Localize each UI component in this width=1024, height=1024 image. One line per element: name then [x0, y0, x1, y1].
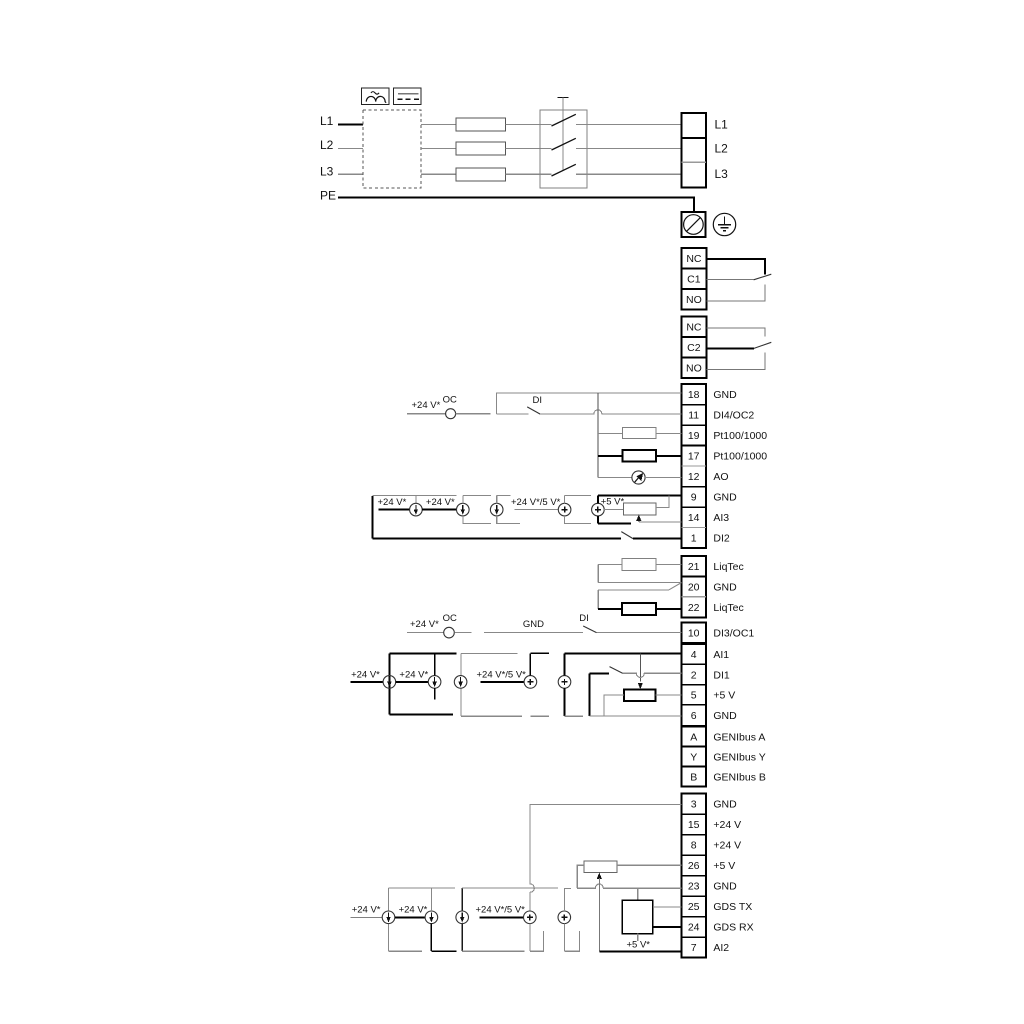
svg-text:25: 25 — [688, 901, 700, 913]
svg-text:GND: GND — [713, 881, 737, 893]
svg-text:+24 V*: +24 V* — [378, 497, 407, 508]
svg-text:NC: NC — [686, 253, 702, 265]
svg-text:+24 V*/5 V*: +24 V*/5 V* — [477, 669, 527, 680]
svg-text:+24 V*: +24 V* — [399, 669, 428, 680]
svg-text:LiqTec: LiqTec — [713, 602, 743, 614]
svg-text:+24 V*: +24 V* — [426, 497, 455, 508]
svg-text:11: 11 — [688, 410, 699, 422]
svg-text:DI: DI — [533, 395, 543, 406]
svg-text:9: 9 — [691, 492, 697, 504]
svg-text:GDS RX: GDS RX — [713, 922, 753, 934]
svg-text:7: 7 — [691, 942, 697, 954]
svg-text:GND: GND — [523, 619, 544, 630]
svg-text:Y: Y — [690, 751, 697, 763]
svg-text:GDS TX: GDS TX — [713, 901, 752, 913]
svg-text:26: 26 — [688, 860, 700, 872]
svg-text:+24 V*: +24 V* — [412, 400, 441, 411]
svg-text:19: 19 — [688, 430, 700, 442]
svg-text:L1: L1 — [320, 114, 334, 128]
svg-text:4: 4 — [691, 649, 697, 661]
svg-text:+5 V: +5 V — [713, 690, 735, 702]
svg-text:+5 V*: +5 V* — [627, 939, 651, 950]
svg-text:AI3: AI3 — [713, 512, 729, 524]
svg-text:+24 V*: +24 V* — [352, 905, 381, 916]
svg-text:OC: OC — [443, 613, 457, 624]
svg-text:GND: GND — [713, 799, 737, 811]
svg-text:OC: OC — [443, 394, 457, 405]
svg-text:AO: AO — [713, 471, 728, 483]
svg-text:+5 V: +5 V — [713, 860, 735, 872]
svg-text:L3: L3 — [715, 167, 729, 181]
svg-text:GENIbus A: GENIbus A — [713, 731, 765, 743]
svg-text:3: 3 — [691, 799, 697, 811]
svg-text:GENIbus B: GENIbus B — [713, 771, 766, 783]
svg-text:20: 20 — [688, 581, 700, 593]
svg-text:1: 1 — [691, 533, 697, 545]
svg-text:C2: C2 — [687, 342, 701, 354]
svg-text:14: 14 — [688, 512, 700, 524]
svg-text:5: 5 — [691, 690, 697, 702]
svg-text:GND: GND — [713, 581, 737, 593]
svg-text:NC: NC — [686, 321, 702, 333]
svg-text:Pt100/1000: Pt100/1000 — [713, 451, 767, 463]
svg-text:24: 24 — [688, 922, 700, 934]
svg-text:+24 V*/5 V*: +24 V*/5 V* — [476, 905, 526, 916]
svg-text:DI1: DI1 — [713, 669, 730, 681]
svg-text:C1: C1 — [687, 274, 701, 286]
svg-text:+24 V*: +24 V* — [399, 905, 428, 916]
svg-text:+24 V*: +24 V* — [351, 669, 380, 680]
svg-text:12: 12 — [688, 471, 700, 483]
svg-text:NO: NO — [686, 363, 702, 375]
svg-text:GND: GND — [713, 492, 737, 504]
svg-text:DI4/OC2: DI4/OC2 — [713, 410, 754, 422]
svg-text:+24 V: +24 V — [713, 819, 741, 831]
svg-text:GENIbus Y: GENIbus Y — [713, 751, 765, 763]
svg-text:B: B — [690, 771, 697, 783]
svg-text:2: 2 — [691, 669, 697, 681]
svg-text:22: 22 — [688, 602, 700, 614]
svg-text:DI2: DI2 — [713, 533, 730, 545]
svg-text:+24 V*/5 V*: +24 V*/5 V* — [511, 497, 561, 508]
svg-text:18: 18 — [688, 389, 700, 401]
svg-text:AI2: AI2 — [713, 942, 729, 954]
svg-text:8: 8 — [691, 840, 697, 852]
svg-text:GND: GND — [713, 389, 737, 401]
svg-text:6: 6 — [691, 710, 697, 722]
svg-text:L2: L2 — [320, 138, 334, 152]
svg-text:AI1: AI1 — [713, 649, 729, 661]
svg-text:17: 17 — [688, 451, 700, 463]
svg-text:21: 21 — [688, 561, 700, 573]
svg-text:LiqTec: LiqTec — [713, 561, 743, 573]
svg-text:Pt100/1000: Pt100/1000 — [713, 430, 767, 442]
svg-text:+24 V: +24 V — [713, 840, 741, 852]
svg-text:DI3/OC1: DI3/OC1 — [713, 628, 754, 640]
svg-text:DI: DI — [579, 613, 589, 624]
svg-text:GND: GND — [713, 710, 737, 722]
svg-text:L1: L1 — [715, 118, 729, 132]
svg-text:A: A — [690, 731, 697, 743]
svg-text:PE: PE — [320, 189, 336, 203]
svg-text:L2: L2 — [715, 142, 729, 156]
svg-text:+24 V*: +24 V* — [410, 619, 439, 630]
svg-text:23: 23 — [688, 881, 700, 893]
svg-text:15: 15 — [688, 819, 700, 831]
svg-text:NO: NO — [686, 294, 702, 306]
svg-text:L3: L3 — [320, 165, 334, 179]
svg-text:10: 10 — [688, 628, 700, 640]
svg-text:+5 V*: +5 V* — [601, 496, 625, 507]
